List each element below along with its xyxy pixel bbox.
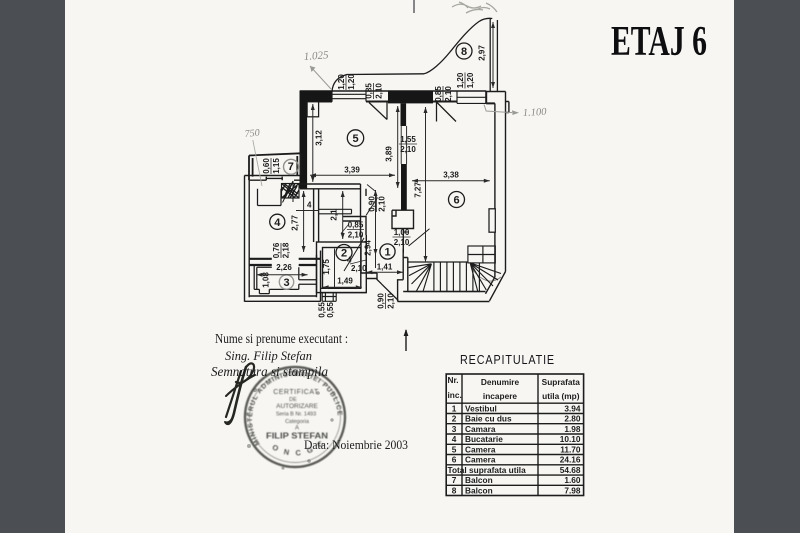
svg-text:CERTIFICAT: CERTIFICAT [273, 389, 319, 396]
svg-text:1,00: 1,00 [394, 228, 410, 237]
svg-text:2,18: 2,18 [282, 242, 291, 258]
svg-text:Categoria: Categoria [285, 419, 310, 425]
svg-text:2,10: 2,10 [375, 83, 384, 99]
svg-text:0,85: 0,85 [365, 83, 374, 99]
svg-text:4: 4 [452, 434, 457, 444]
svg-text:2,97: 2,97 [478, 45, 487, 61]
svg-text:2,10: 2,10 [444, 86, 453, 102]
svg-text:1: 1 [452, 403, 457, 413]
svg-text:2,94: 2,94 [364, 240, 373, 256]
svg-text:1.98: 1.98 [564, 424, 581, 434]
svg-text:11.70: 11.70 [560, 444, 581, 454]
svg-text:3,39: 3,39 [344, 166, 360, 175]
svg-text:0,76: 0,76 [272, 242, 281, 258]
svg-text:Nr.: Nr. [448, 375, 459, 385]
svg-text:2.80: 2.80 [564, 414, 581, 424]
svg-text:ETAJ 6: ETAJ 6 [611, 19, 707, 65]
svg-text:2,10: 2,10 [400, 145, 416, 154]
svg-text:1,20: 1,20 [347, 74, 356, 90]
svg-text:Semnatura si stampila: Semnatura si stampila [211, 364, 328, 379]
svg-text:Camera: Camera [465, 444, 496, 454]
svg-text:AUTORIZARE: AUTORIZARE [276, 403, 318, 410]
svg-text:2,10: 2,10 [351, 264, 367, 273]
svg-text:3,12: 3,12 [315, 130, 324, 146]
svg-text:750: 750 [244, 127, 260, 140]
svg-text:Balcon: Balcon [465, 475, 493, 485]
svg-text:2,1: 2,1 [330, 209, 339, 221]
svg-text:inc.: inc. [448, 390, 462, 400]
svg-text:Balcon: Balcon [465, 485, 493, 495]
svg-text:0,90: 0,90 [377, 293, 386, 309]
svg-text:0,85: 0,85 [348, 221, 364, 230]
svg-text:7,27: 7,27 [414, 182, 423, 198]
svg-text:24.16: 24.16 [560, 455, 581, 465]
svg-text:7: 7 [452, 475, 457, 485]
svg-text:1,08: 1,08 [262, 272, 271, 288]
svg-text:1.100: 1.100 [523, 107, 548, 119]
svg-text:2,10: 2,10 [378, 196, 387, 212]
svg-text:Camera: Camera [465, 455, 496, 465]
svg-text:1,41: 1,41 [377, 263, 393, 272]
svg-text:3,38: 3,38 [443, 171, 459, 180]
svg-text:4: 4 [274, 217, 281, 229]
svg-text:0,85: 0,85 [434, 86, 443, 102]
svg-text:3.94: 3.94 [564, 403, 581, 413]
svg-text:3,89: 3,89 [385, 146, 394, 162]
svg-text:1: 1 [384, 247, 390, 259]
svg-text:1,20: 1,20 [466, 72, 475, 88]
svg-text:1,15: 1,15 [272, 158, 281, 174]
svg-text:Sing. Filip Stefan: Sing. Filip Stefan [225, 349, 312, 363]
svg-text:6: 6 [452, 455, 457, 465]
svg-text:Seria B Nr. 1493: Seria B Nr. 1493 [276, 412, 316, 418]
svg-text:0,55: 0,55 [326, 302, 335, 318]
svg-text:1.60: 1.60 [564, 475, 581, 485]
svg-text:1,20: 1,20 [456, 72, 465, 88]
svg-text:Suprafata: Suprafata [542, 377, 581, 387]
svg-text:5: 5 [452, 444, 457, 454]
svg-text:10.10: 10.10 [560, 434, 581, 444]
svg-text:2,10: 2,10 [394, 238, 410, 247]
svg-text:4: 4 [307, 201, 312, 210]
svg-text:54.68: 54.68 [560, 465, 581, 475]
svg-text:Nume si prenume executant :: Nume si prenume executant : [215, 331, 348, 346]
svg-text:incapere: incapere [483, 391, 518, 401]
svg-text:3: 3 [452, 424, 457, 434]
svg-text:8: 8 [461, 46, 467, 58]
svg-text:0,90: 0,90 [368, 196, 377, 212]
svg-text:8: 8 [452, 485, 457, 495]
svg-text:Baie cu dus: Baie cu dus [465, 414, 512, 424]
svg-text:Total suprafata utila: Total suprafata utila [448, 465, 527, 475]
svg-text:2,10: 2,10 [348, 231, 364, 240]
svg-text:1,20: 1,20 [337, 74, 346, 90]
svg-text:5: 5 [352, 133, 358, 145]
svg-text:6: 6 [453, 195, 459, 207]
svg-text:2,10: 2,10 [387, 293, 396, 309]
svg-text:1,49: 1,49 [337, 277, 353, 286]
svg-text:Denumire: Denumire [481, 377, 520, 387]
svg-text:utila (mp): utila (mp) [542, 391, 580, 401]
svg-text:3: 3 [283, 277, 289, 289]
svg-text:1,55: 1,55 [400, 135, 416, 144]
svg-text:0,60: 0,60 [262, 158, 271, 174]
svg-text:Vestibul: Vestibul [465, 403, 497, 413]
svg-text:Camara: Camara [465, 424, 496, 434]
svg-text:2,26: 2,26 [276, 263, 292, 272]
svg-text:RECAPITULATIE: RECAPITULATIE [460, 353, 555, 367]
svg-text:1,75: 1,75 [322, 259, 331, 275]
svg-text:Data: Noiembrie 2003: Data: Noiembrie 2003 [304, 437, 408, 452]
svg-text:7.98: 7.98 [564, 485, 581, 495]
svg-text:2,77: 2,77 [291, 215, 300, 231]
svg-text:Bucatarie: Bucatarie [465, 434, 503, 444]
svg-text:7: 7 [288, 161, 294, 173]
svg-text:2: 2 [452, 414, 457, 424]
svg-text:1.025: 1.025 [303, 49, 329, 63]
